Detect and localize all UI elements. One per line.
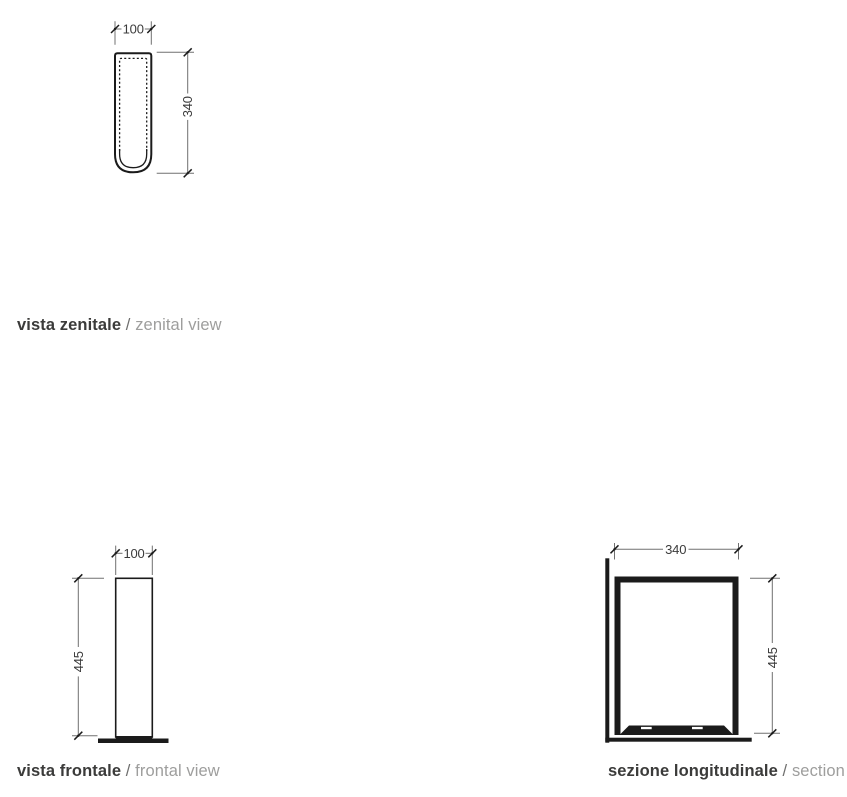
zenital-depth-value: 340 xyxy=(180,96,195,117)
technical-drawing-sheet: 100 340 vista zenitale / zenital view xyxy=(0,0,847,797)
pedestal-section-base xyxy=(620,726,734,736)
section-label-english: section xyxy=(792,762,845,780)
pedestal-front-outline xyxy=(116,578,153,737)
zenital-width-value: 100 xyxy=(123,22,144,37)
pedestal-top-outline xyxy=(115,53,151,172)
frontal-height-value: 445 xyxy=(71,651,86,672)
frontal-height-dimension: 445 xyxy=(71,574,104,739)
section-label-italian: sezione longitudinale xyxy=(608,762,778,780)
frontal-view-drawing: 100 445 xyxy=(58,540,193,753)
wall-line xyxy=(605,558,609,742)
floor-base-line xyxy=(98,739,169,744)
section-view-drawing: 340 445 xyxy=(593,540,797,753)
section-height-dimension: 445 xyxy=(750,574,780,737)
zenital-label-english: zenital view xyxy=(135,316,222,334)
frontal-width-dimension: 100 xyxy=(112,546,157,575)
floor-line xyxy=(605,738,751,742)
frontal-width-value: 100 xyxy=(123,546,144,561)
zenital-depth-dimension: 340 xyxy=(157,48,196,177)
base-fixing-slot-left xyxy=(641,727,652,729)
section-view-label: sezione longitudinale / section xyxy=(608,762,845,781)
section-height-value: 445 xyxy=(765,647,780,668)
pedestal-inner-bottom-rim xyxy=(120,149,147,168)
pedestal-inner-dotted-edge xyxy=(120,58,147,151)
frontal-label-italian: vista frontale xyxy=(17,762,121,780)
base-fixing-slot-right xyxy=(692,727,703,729)
pedestal-section-profile xyxy=(618,580,736,736)
section-width-value: 340 xyxy=(665,542,686,557)
section-label-separator: / xyxy=(778,762,792,780)
zenital-label-italian: vista zenitale xyxy=(17,316,121,334)
zenital-view-drawing: 100 340 xyxy=(70,13,205,185)
section-width-dimension: 340 xyxy=(611,542,743,560)
frontal-label-english: frontal view xyxy=(135,762,220,780)
frontal-view-label: vista frontale / frontal view xyxy=(17,762,220,781)
zenital-width-dimension: 100 xyxy=(111,21,155,44)
frontal-label-separator: / xyxy=(121,762,135,780)
zenital-view-label: vista zenitale / zenital view xyxy=(17,316,222,335)
zenital-label-separator: / xyxy=(121,316,135,334)
